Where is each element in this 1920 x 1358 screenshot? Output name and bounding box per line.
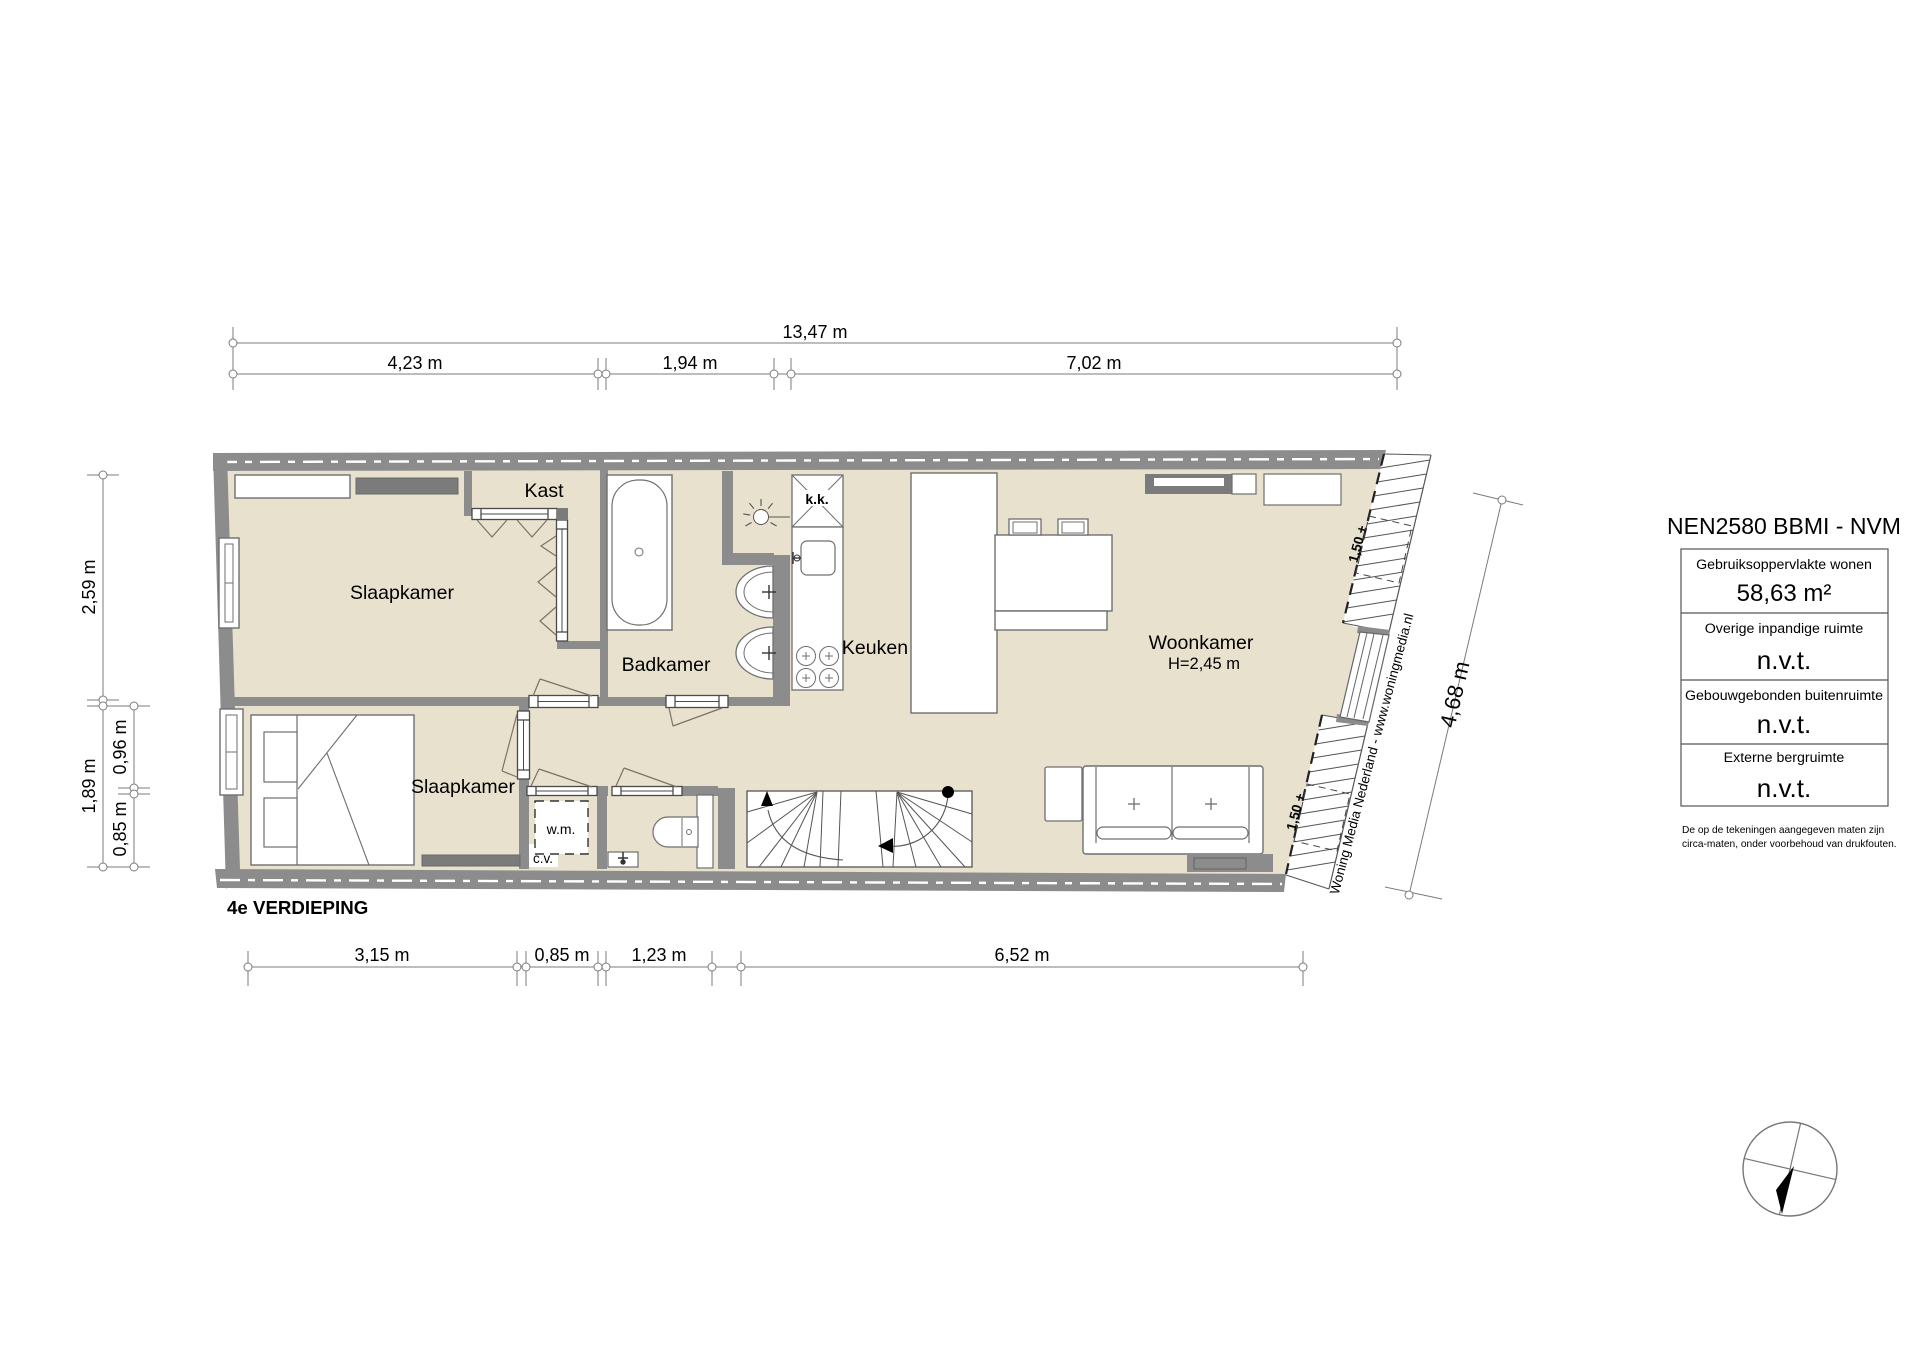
svg-text:4e VERDIEPING: 4e VERDIEPING	[227, 897, 368, 918]
svg-text:Kast: Kast	[524, 480, 564, 502]
svg-text:k.k.: k.k.	[805, 491, 828, 507]
svg-text:Overige inpandige ruimte: Overige inpandige ruimte	[1705, 621, 1864, 637]
svg-text:7,02 m: 7,02 m	[1066, 353, 1121, 373]
svg-text:13,47 m: 13,47 m	[782, 322, 847, 342]
svg-text:Keuken: Keuken	[842, 637, 908, 659]
svg-text:0,85 m: 0,85 m	[534, 945, 589, 965]
svg-text:De op de tekeningen aangegeven: De op de tekeningen aangegeven maten zij…	[1682, 825, 1884, 836]
svg-text:H=2,45 m: H=2,45 m	[1168, 655, 1240, 673]
svg-text:n.v.t.: n.v.t.	[1757, 773, 1811, 803]
svg-text:58,63 m²: 58,63 m²	[1737, 580, 1832, 607]
svg-text:4,68 m: 4,68 m	[1435, 659, 1474, 730]
svg-text:1,94 m: 1,94 m	[662, 353, 717, 373]
svg-text:w.m.: w.m.	[546, 821, 576, 837]
svg-text:Gebruiksoppervlakte wonen: Gebruiksoppervlakte wonen	[1696, 557, 1872, 573]
svg-text:Gebouwgebonden buitenruimte: Gebouwgebonden buitenruimte	[1685, 688, 1883, 704]
svg-text:Externe bergruimte: Externe bergruimte	[1724, 750, 1845, 766]
svg-text:1,89 m: 1,89 m	[79, 758, 99, 813]
svg-text:circa-maten, onder voorbehoud: circa-maten, onder voorbehoud van drukfo…	[1682, 839, 1897, 850]
svg-text:Woonkamer: Woonkamer	[1149, 632, 1254, 654]
svg-text:NEN2580 BBMI - NVM: NEN2580 BBMI - NVM	[1667, 513, 1901, 539]
svg-text:2,59 m: 2,59 m	[79, 559, 99, 614]
svg-text:n.v.t.: n.v.t.	[1757, 709, 1811, 739]
svg-text:0,96 m: 0,96 m	[110, 719, 130, 774]
svg-text:3,15 m: 3,15 m	[354, 945, 409, 965]
svg-text:1,23 m: 1,23 m	[631, 945, 686, 965]
svg-text:4,23 m: 4,23 m	[387, 353, 442, 373]
svg-text:c.v.: c.v.	[533, 851, 553, 866]
svg-text:Badkamer: Badkamer	[622, 654, 711, 676]
svg-text:Slaapkamer: Slaapkamer	[411, 776, 516, 798]
svg-text:6,52 m: 6,52 m	[994, 945, 1049, 965]
svg-text:n.v.t.: n.v.t.	[1757, 645, 1811, 675]
svg-text:0,85 m: 0,85 m	[110, 801, 130, 856]
svg-text:Slaapkamer: Slaapkamer	[350, 582, 455, 604]
